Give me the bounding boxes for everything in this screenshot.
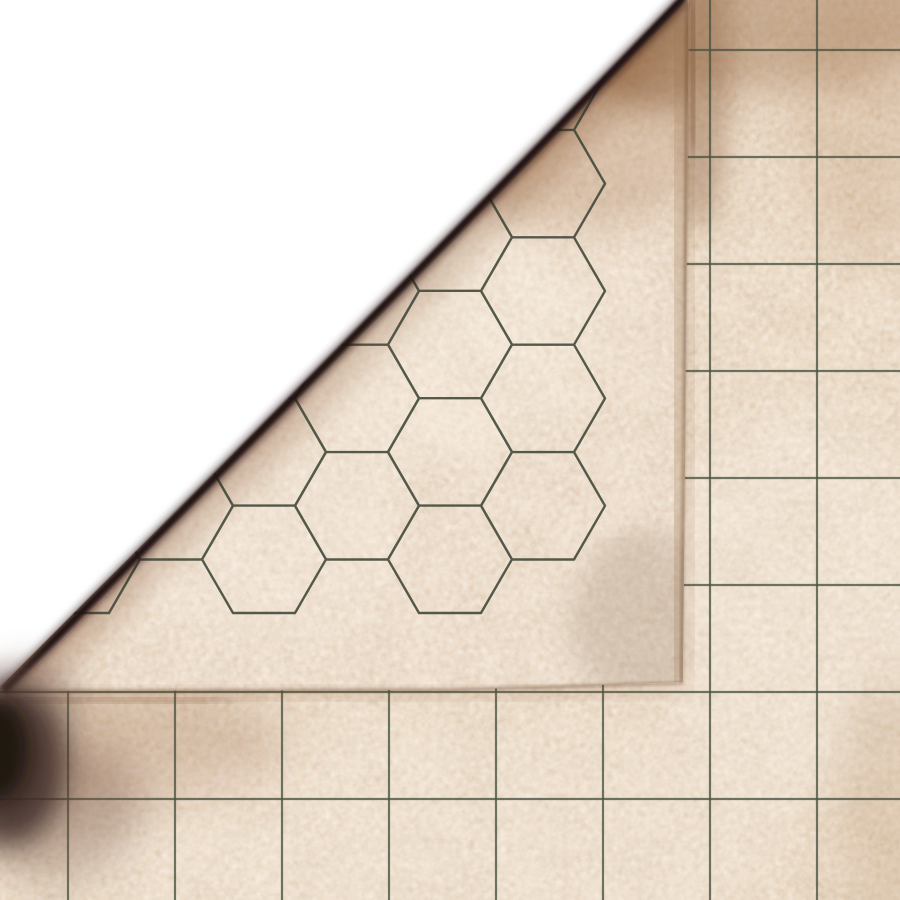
- battlemat-product-photo: [0, 0, 900, 900]
- mat-photo-svg: [0, 0, 900, 900]
